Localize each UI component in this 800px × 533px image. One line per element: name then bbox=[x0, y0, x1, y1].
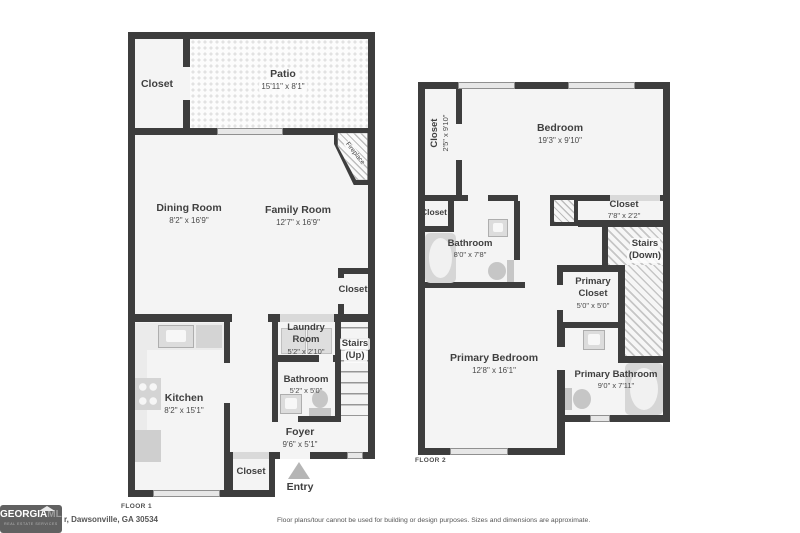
room-name: Closet bbox=[417, 207, 451, 218]
toilet bbox=[573, 389, 591, 409]
room-dims: 9'6" x 5'1" bbox=[256, 440, 344, 450]
room-label-closet-bottom: Closet bbox=[223, 466, 279, 478]
toilet-tank bbox=[507, 260, 514, 282]
room-name: Closet bbox=[586, 199, 662, 211]
room-name: Stairs bbox=[340, 338, 370, 350]
wall bbox=[128, 32, 375, 39]
floor1-plan: Fireplace bbox=[128, 32, 375, 497]
door-gap bbox=[514, 260, 520, 282]
primary-bathroom-window bbox=[590, 415, 610, 422]
room-name: Primary bbox=[565, 276, 621, 288]
door-gap bbox=[518, 195, 550, 201]
refrigerator bbox=[135, 430, 161, 462]
toilet bbox=[488, 262, 506, 280]
floor2-plan: Closet 2'5" x 9'10" Bedroom 19'3" x 9'10… bbox=[418, 82, 670, 455]
room-dims: 8'2" x 16'9" bbox=[137, 216, 241, 226]
room-name: Closet bbox=[330, 284, 376, 296]
room-label-bathroom2: Bathroom 8'0" x 7'8" bbox=[428, 238, 512, 260]
floor-plan-page: Fireplace bbox=[0, 0, 800, 533]
room-label-laundry: Laundry Room 5'2" x 2'10" bbox=[274, 322, 338, 356]
property-address: r, Dawsonville, GA 30534 bbox=[64, 515, 158, 524]
room-dims: 12'8" x 16'1" bbox=[438, 366, 550, 376]
room-name: Primary Bedroom bbox=[438, 352, 550, 366]
dishwasher bbox=[196, 325, 222, 348]
logo-tagline: REAL ESTATE SERVICES bbox=[0, 522, 62, 526]
room-name: Patio bbox=[268, 68, 298, 82]
room-dims: (Down) bbox=[627, 250, 663, 262]
room-label-bathroom: Bathroom 5'2" x 5'0" bbox=[272, 374, 340, 396]
floor2-tag: FLOOR 2 bbox=[415, 457, 446, 464]
room-name: Room bbox=[274, 334, 338, 346]
room-name: Closet bbox=[429, 97, 441, 169]
room-label-closet-right: Closet bbox=[330, 284, 376, 296]
room-label-primary-bedroom: Primary Bedroom 12'8" x 16'1" bbox=[438, 352, 550, 376]
room-name: Closet bbox=[132, 78, 182, 92]
room-dims: 5'0" x 5'0" bbox=[565, 301, 621, 311]
bedroom-window bbox=[568, 82, 635, 89]
room-name: Stairs bbox=[630, 238, 660, 250]
wall bbox=[224, 322, 230, 363]
room-label-primary-bathroom: Primary Bathroom 9'0" x 7'11" bbox=[558, 369, 674, 391]
room-label-bedroom: Bedroom 19'3" x 9'10" bbox=[508, 122, 612, 146]
chimney-chase bbox=[550, 196, 578, 226]
georgia-mls-logo: GEORGIAMLS REAL ESTATE SERVICES bbox=[0, 505, 62, 533]
kitchen-window bbox=[153, 490, 220, 497]
stairs-hatch bbox=[625, 265, 663, 356]
entry-arrow-icon bbox=[288, 462, 310, 479]
room-label-closet-side: Closet 2'5" x 9'10" bbox=[429, 97, 451, 169]
wall bbox=[338, 304, 344, 314]
wall bbox=[183, 39, 190, 67]
room-name: Foyer bbox=[256, 426, 344, 440]
room-name: Entry bbox=[268, 481, 332, 495]
toilet-tank bbox=[565, 388, 572, 410]
primary-bedroom-window bbox=[450, 448, 508, 455]
door-gap bbox=[468, 195, 488, 201]
wall bbox=[557, 322, 625, 328]
room-dims: 19'3" x 9'10" bbox=[508, 136, 612, 146]
room-name: Bathroom bbox=[428, 238, 512, 250]
entry-label: Entry bbox=[268, 481, 332, 495]
wall bbox=[557, 265, 625, 272]
foyer-window bbox=[347, 452, 363, 459]
room-name: Closet bbox=[223, 466, 279, 478]
room-label-closet-top: Closet 7'8" x 2'2" bbox=[586, 199, 662, 221]
toilet-tank bbox=[309, 408, 331, 416]
room-label-foyer: Foyer 9'6" x 5'1" bbox=[256, 426, 344, 450]
room-dims: 15'11" x 8'1" bbox=[259, 82, 306, 92]
wall bbox=[625, 356, 670, 363]
room-dims: (Up) bbox=[344, 350, 367, 362]
room-name: Bedroom bbox=[508, 122, 612, 136]
room-label-primary-closet: Primary Closet 5'0" x 5'0" bbox=[565, 276, 621, 310]
room-label-kitchen: Kitchen 8'2" x 15'1" bbox=[140, 392, 228, 416]
room-label-patio: Patio 15'11" x 8'1" bbox=[223, 68, 343, 92]
bathroom-sink bbox=[280, 394, 302, 414]
door-gap bbox=[278, 416, 298, 422]
room-label-closet-small: Closet bbox=[417, 207, 451, 218]
disclaimer-text: Floor plans/tour cannot be used for buil… bbox=[277, 517, 590, 524]
door-gap bbox=[557, 285, 563, 310]
room-label-closet-tl: Closet bbox=[132, 78, 182, 92]
room-name: Bathroom bbox=[272, 374, 340, 386]
room-dims: 12'7" x 16'9" bbox=[246, 218, 350, 228]
bathroom-sink bbox=[488, 219, 508, 237]
patio-door-window bbox=[217, 128, 283, 135]
bedroom-window bbox=[458, 82, 515, 89]
wall bbox=[368, 32, 375, 459]
room-name: Family Room bbox=[246, 204, 350, 218]
room-dims: 9'0" x 7'11" bbox=[558, 381, 674, 391]
outside-area bbox=[565, 422, 670, 455]
wall bbox=[128, 32, 135, 497]
door-gap bbox=[456, 124, 462, 160]
door-gap bbox=[557, 347, 565, 370]
room-dims: 8'2" x 15'1" bbox=[140, 406, 228, 416]
entry-door-gap bbox=[280, 452, 310, 459]
house-roof-icon bbox=[39, 506, 55, 511]
room-dims: 5'2" x 5'0" bbox=[272, 386, 340, 396]
room-name: Primary Bathroom bbox=[558, 369, 674, 381]
fireplace: Fireplace bbox=[334, 128, 372, 185]
room-name: Laundry bbox=[274, 322, 338, 334]
wall bbox=[338, 268, 344, 278]
room-dims: 7'8" x 2'2" bbox=[586, 211, 662, 221]
wall bbox=[418, 226, 454, 232]
wall bbox=[418, 82, 425, 455]
room-name: Closet bbox=[565, 288, 621, 300]
wall bbox=[183, 100, 190, 128]
wall bbox=[128, 314, 232, 322]
kitchen-sink bbox=[158, 325, 194, 348]
room-dims: 8'0" x 7'8" bbox=[428, 250, 512, 260]
room-dims: 2'5" x 9'10" bbox=[441, 97, 451, 169]
primary-bathroom-sink bbox=[583, 330, 605, 350]
room-name: Kitchen bbox=[140, 392, 228, 406]
floor1-tag: FLOOR 1 bbox=[121, 503, 152, 510]
room-label-dining: Dining Room 8'2" x 16'9" bbox=[137, 202, 241, 226]
wall bbox=[565, 415, 670, 422]
room-label-family: Family Room 12'7" x 16'9" bbox=[246, 204, 350, 228]
room-dims: 5'2" x 2'10" bbox=[274, 347, 338, 357]
laundry-bifold-door bbox=[280, 314, 334, 322]
closet-door bbox=[233, 452, 269, 459]
room-name: Dining Room bbox=[137, 202, 241, 216]
room-label-stairs-up: Stairs (Up) bbox=[334, 338, 376, 363]
room-label-stairs-down: Stairs (Down) bbox=[618, 238, 672, 263]
